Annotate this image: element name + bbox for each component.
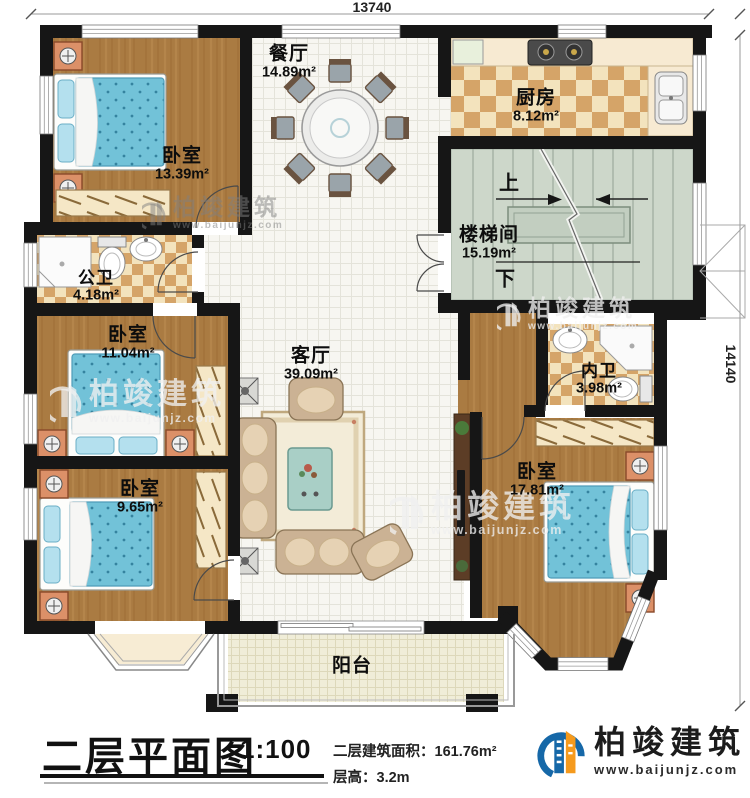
sofa [276,530,364,574]
dining-chair [386,117,409,139]
sofa [234,418,276,538]
title-block: 二层平面图 1:100 二层建筑面积：161.76m² 层高：3.2m 柏竣建筑… [0,712,750,798]
wall [458,312,470,380]
room-label-public-bathroom: 公卫4.18m² [73,268,119,303]
pillow [119,437,157,454]
window [24,488,37,540]
room-label-kitchen: 厨房8.12m² [513,87,559,125]
plant [455,421,469,435]
room-label-inner-bathroom: 内卫3.98m² [576,361,622,396]
wardrobe [536,420,654,446]
dimension-top: 13740 [353,0,392,15]
company-logo: 柏竣建筑 www.baijunjz.com [536,724,746,782]
pillow [76,437,114,454]
room-label-living: 客厅39.09m² [284,345,338,383]
nightstand [626,452,654,480]
dining-chair [329,174,351,197]
pillow [44,506,60,542]
tv-cabinet [454,414,470,580]
stair-down-label: 下 [495,263,515,292]
stair-up-label: 上 [499,167,519,196]
nightstand [166,430,194,458]
nightstand [40,592,68,620]
window [24,243,37,287]
window [654,446,667,530]
company-website: www.baijunjz.com [594,762,746,777]
floor-height-info: 层高：3.2m [333,766,410,787]
sliding-door [278,621,424,634]
window [24,394,37,444]
wall [24,456,240,469]
pillow [632,534,648,574]
wall [24,303,240,316]
bay-window-bottom-left [88,621,214,670]
pillow [44,547,60,583]
pillow [632,490,648,530]
window [40,76,53,134]
window [558,25,606,38]
floorplan-page: 卧室13.39m² 餐厅14.89m² 厨房8.12m² 楼梯间15.19m² … [0,0,750,798]
bathroom-sink [553,327,587,353]
bed-sheet-fold [70,502,92,586]
door-opening [192,248,205,292]
dimension-right: 14140 [723,345,739,384]
window [282,25,400,38]
nightstand [54,42,82,70]
wardrobe [196,472,226,568]
bed-sheet-fold [72,410,160,434]
wall [438,25,451,97]
room-label-dining: 餐厅14.89m² [262,43,316,81]
company-logo-icon [536,724,588,782]
wall [240,25,252,225]
plant [456,560,468,572]
dining-chair [329,59,351,82]
room-label-bedroom-bottom-left: 卧室9.65m² [117,478,163,516]
door-opening [153,303,197,316]
bathroom-sink [130,237,162,261]
awning-right [700,225,745,318]
nightstand [38,430,66,458]
door-opening [545,405,585,417]
nightstand [40,470,68,498]
room-label-bedroom-mid-left: 卧室11.04m² [101,324,154,362]
wall [438,300,706,313]
wall [654,307,667,580]
window [558,658,608,671]
pillow [58,124,74,162]
title-underline-shadow [44,782,328,784]
door-opening [438,233,451,293]
room-label-bedroom-top-left: 卧室13.39m² [155,145,209,183]
tv [457,470,465,536]
wall [224,621,278,634]
wall [438,136,706,149]
bed-sheet-fold [76,78,98,166]
coffee-table [288,448,332,510]
kitchen-sink [655,72,687,124]
floor-area-info: 二层建筑面积：161.76m² [333,740,497,761]
title-underline [40,774,324,778]
room-label-stairwell: 楼梯间15.19m² [459,224,519,262]
wardrobe [56,190,170,216]
door-opening [228,556,240,600]
window [82,25,198,38]
door-opening [192,222,238,235]
drawing-scale: 1:100 [240,734,312,765]
stove [528,40,592,65]
armchair [289,378,343,420]
dining-chair [271,117,294,139]
bed-mid-left [68,350,164,460]
company-name: 柏竣建筑 [594,724,746,761]
room-label-bedroom-right: 卧室17.81m² [510,461,564,499]
window [693,55,706,111]
window [693,183,706,265]
room-label-balcony: 阳台 [332,655,372,676]
wall [470,412,482,618]
window-box [453,40,483,64]
pillow [58,80,74,118]
wardrobe [196,366,226,456]
bed-top-left [54,74,166,170]
